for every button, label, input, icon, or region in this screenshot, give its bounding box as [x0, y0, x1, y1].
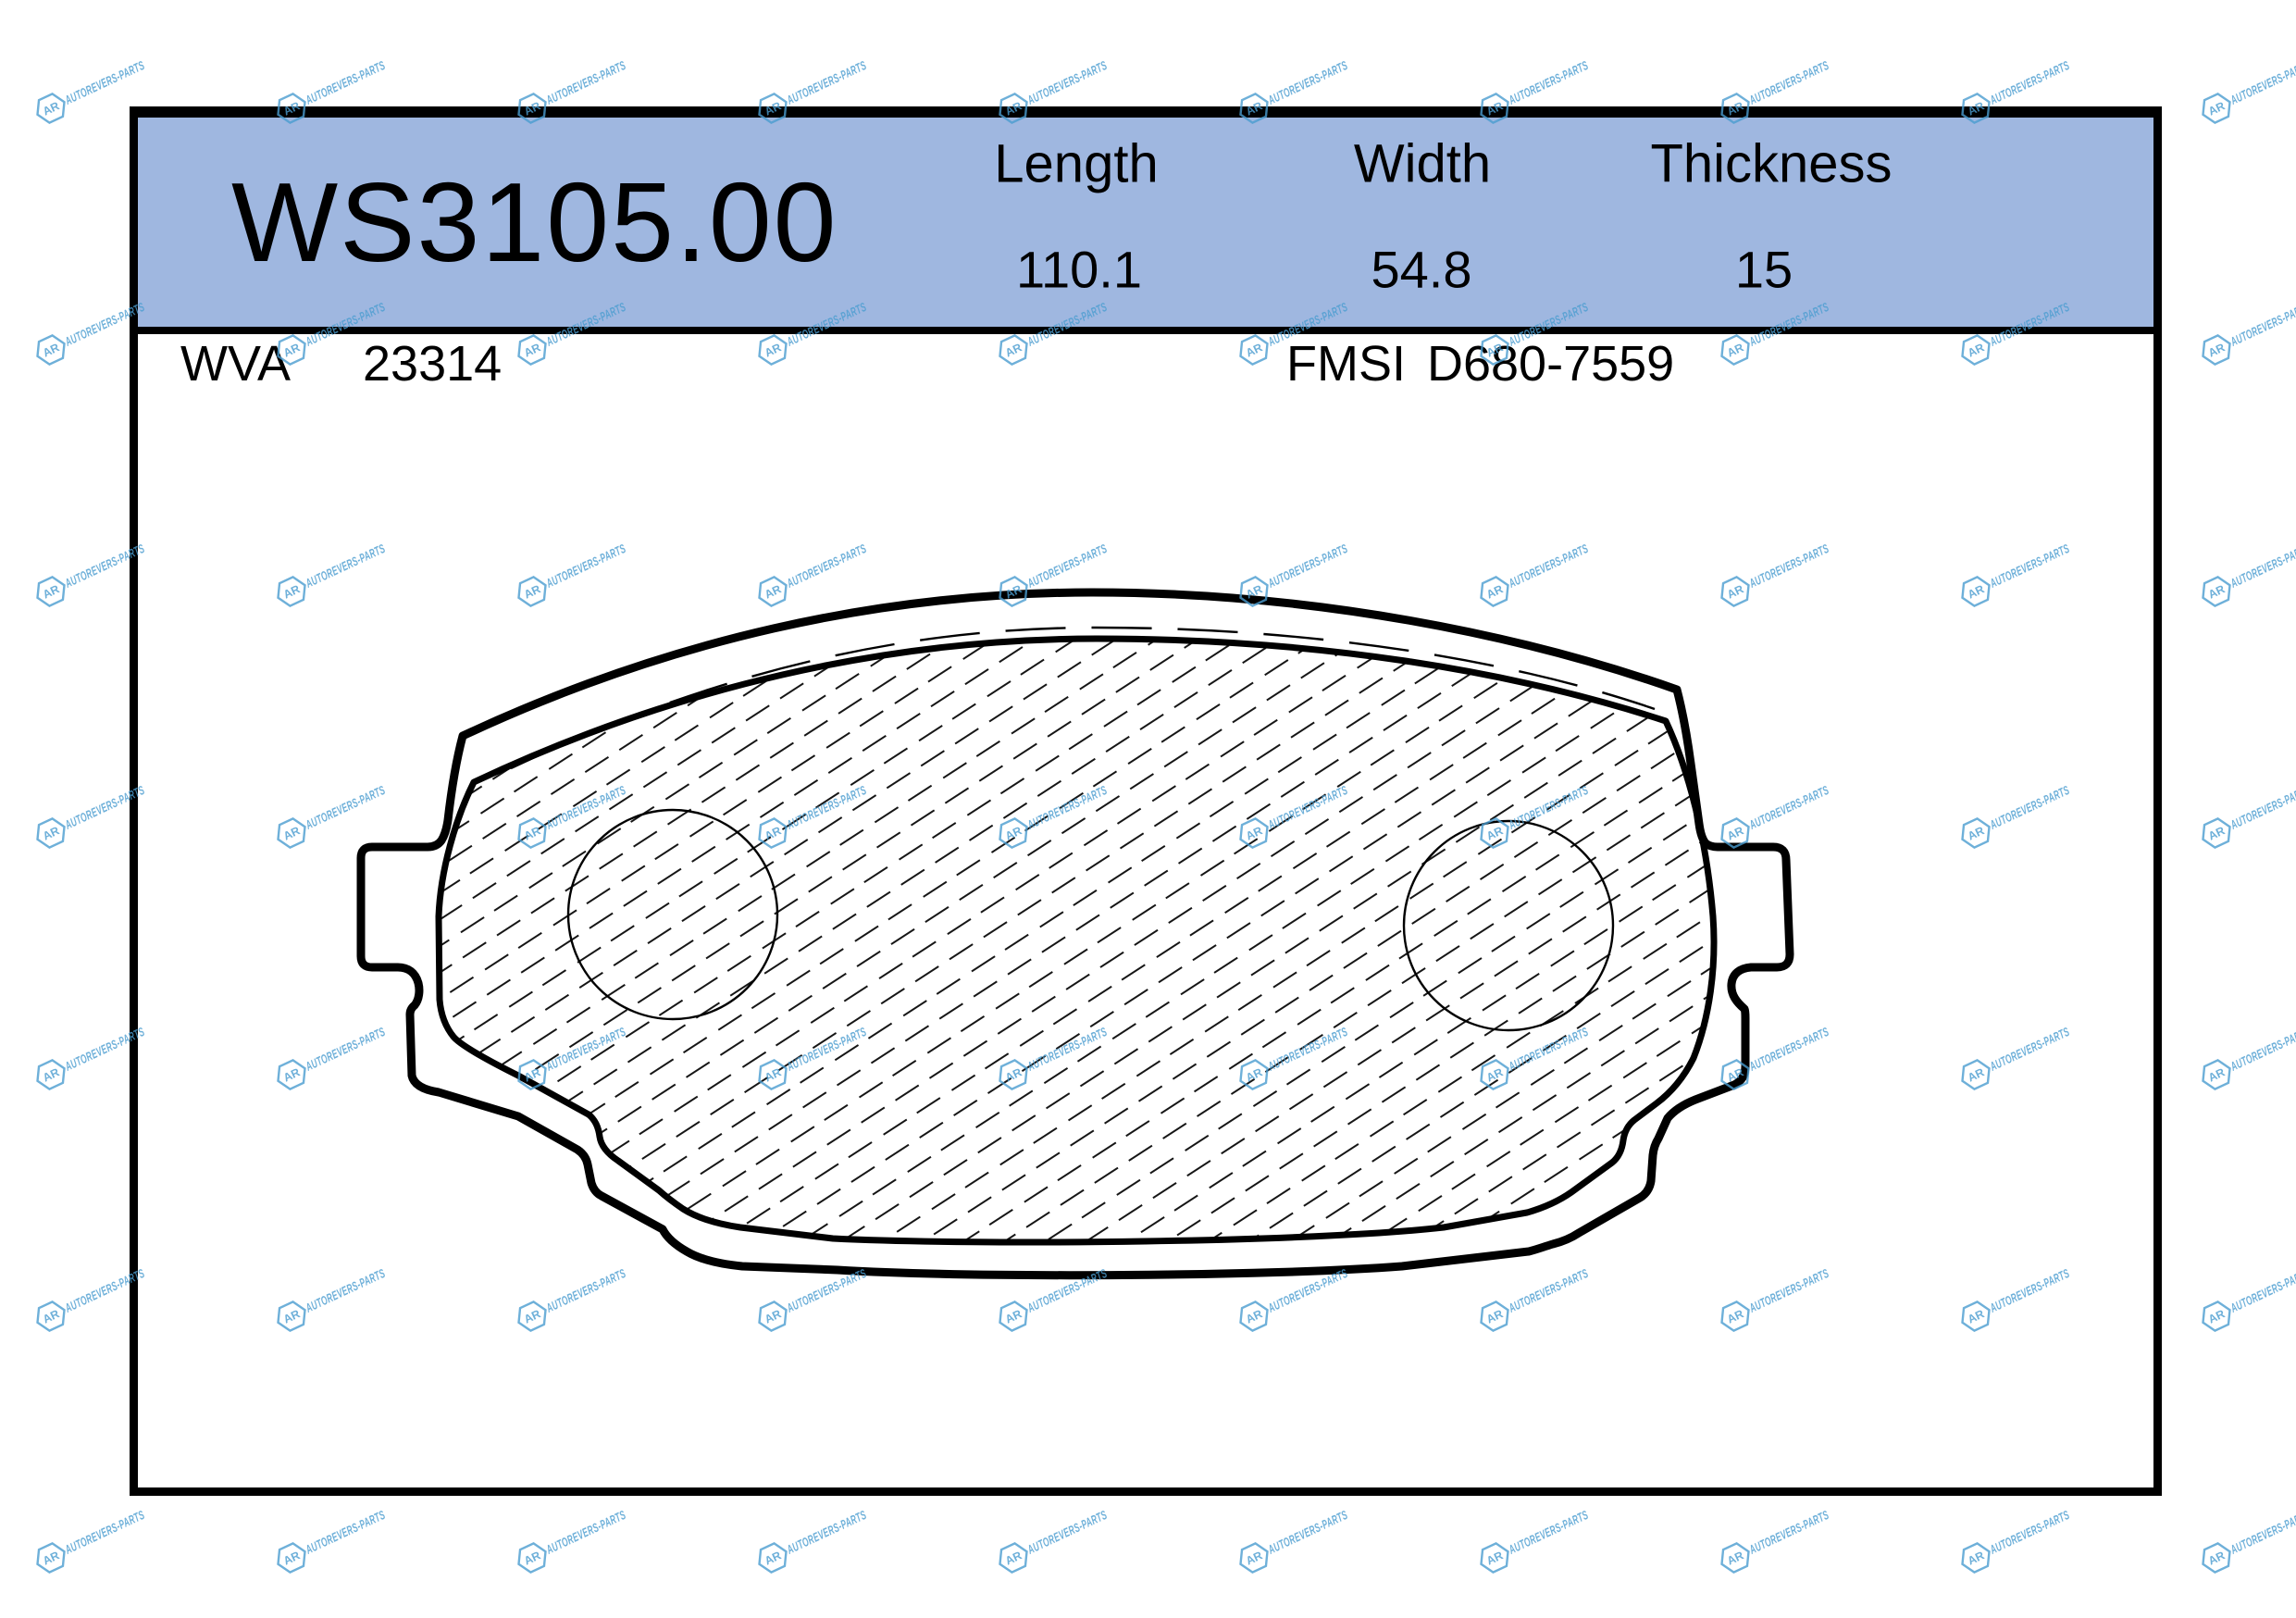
- friction-material-outline: [439, 639, 1714, 1242]
- brake-pad-drawing: [0, 0, 2296, 1618]
- spec-sheet-page: WS3105.00 Length Width Thickness 110.1 5…: [0, 0, 2296, 1618]
